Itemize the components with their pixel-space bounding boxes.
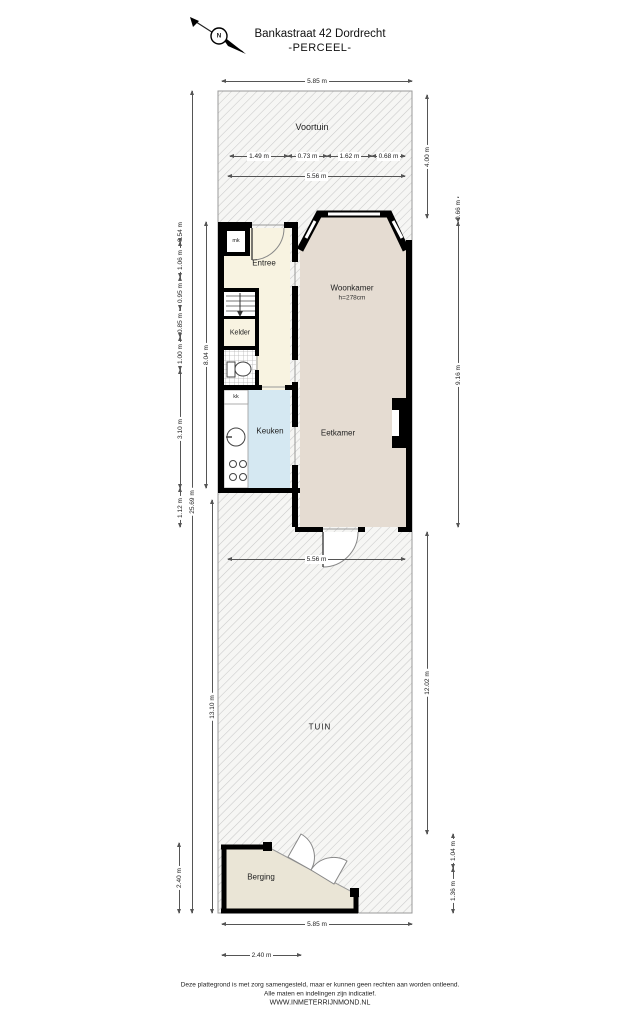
dim-berging-right-lower: 1.36 m xyxy=(453,868,454,913)
dim-berging-width: 2.40 m xyxy=(222,955,301,960)
room-label-berging: Berging xyxy=(247,873,275,882)
dim-berging-depth-left: 2.40 m xyxy=(179,843,180,913)
dim-bay-depth: 0.66 m xyxy=(458,197,459,222)
dim-plot-width-top: 5.85 m xyxy=(222,81,412,86)
room-label-keuken: Keuken xyxy=(256,427,283,436)
dim-house-depth-right: 9.16 m xyxy=(458,222,459,527)
compass-north-label: N xyxy=(217,33,222,40)
dim-facade-seg-1: 1.49 m xyxy=(230,156,288,161)
room-label-entree: Entree xyxy=(252,259,276,268)
dim-facade-seg-2: 0.73 m xyxy=(288,156,327,161)
toilet-icon xyxy=(227,362,251,377)
dim-tuin-depth-left: 13.10 m xyxy=(212,500,213,913)
room-label-woonkamer: Woonkamer xyxy=(331,284,374,293)
floorplan-page: Bankastraat 42 Dordrecht -PERCEEL- N Voo… xyxy=(0,0,640,1024)
dim-left-seg-2: 1.06 m xyxy=(180,242,181,277)
footer-disclaimer-line2: Alle maten en indelingen zijn indicatief… xyxy=(264,991,376,998)
room-label-meterkast: mk xyxy=(232,238,239,244)
room-label-tuin: TUIN xyxy=(309,723,332,732)
dim-left-seg-7: 1.12 m xyxy=(180,488,181,527)
dim-plot-width-bottom: 5.85 m xyxy=(222,924,412,929)
dim-house-depth-left: 8.04 m xyxy=(206,222,207,488)
dim-left-seg-6: 3.10 m xyxy=(180,370,181,488)
footer-website: WWW.INMETERRIJNMOND.NL xyxy=(270,1000,371,1007)
room-label-eetkamer: Eetkamer xyxy=(321,429,355,438)
room-label-keukenkast: kk xyxy=(233,394,239,400)
dim-tuin-depth-right: 12.02 m xyxy=(427,532,428,834)
dim-left-seg-1: 0.54 m xyxy=(180,222,181,242)
dim-berging-right-upper: 1.04 m xyxy=(453,834,454,868)
dim-plot-depth-total: 25.69 m xyxy=(192,91,193,913)
floorplan-drawing xyxy=(0,0,640,1024)
footer-disclaimer-line1: Deze plattegrond is met zorg samengestel… xyxy=(181,982,460,989)
dim-inner-width-top: 5.56 m xyxy=(228,176,405,181)
room-label-kelder: Kelder xyxy=(230,330,250,337)
chimney-notch xyxy=(392,410,399,436)
dim-facade-seg-4: 0.68 m xyxy=(372,156,405,161)
page-title: Bankastraat 42 Dordrecht xyxy=(254,28,385,40)
dim-inner-width-bottom: 5.56 m xyxy=(228,559,405,564)
room-label-voortuin: Voortuin xyxy=(295,122,328,132)
dim-left-seg-4: 0.85 m xyxy=(180,309,181,337)
woonkamer-ceiling-height: h=278cm xyxy=(339,295,366,302)
dim-left-seg-5: 1.00 m xyxy=(180,337,181,370)
dim-voortuin-depth: 4.00 m xyxy=(427,95,428,218)
dim-left-seg-3: 0.95 m xyxy=(180,277,181,309)
page-subtitle: -PERCEEL- xyxy=(288,42,351,54)
dim-facade-seg-3: 1.62 m xyxy=(327,156,372,161)
